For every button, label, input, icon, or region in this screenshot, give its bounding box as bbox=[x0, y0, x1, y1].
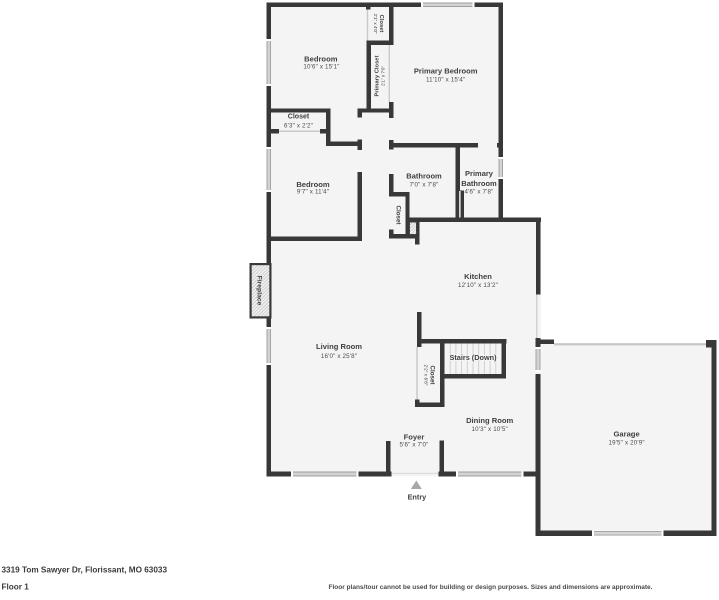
svg-text:6'3" x 2'2": 6'3" x 2'2" bbox=[284, 123, 313, 130]
svg-text:Closet2'2" x 6'8": Closet2'2" x 6'8" bbox=[423, 365, 436, 386]
svg-text:Garage: Garage bbox=[614, 429, 640, 438]
svg-text:Primary: Primary bbox=[465, 169, 494, 178]
svg-text:7'0" x 7'8": 7'0" x 7'8" bbox=[409, 181, 438, 188]
svg-text:Closet: Closet bbox=[288, 114, 310, 121]
svg-text:Bathroom: Bathroom bbox=[461, 179, 497, 188]
svg-text:Stairs (Down): Stairs (Down) bbox=[449, 353, 497, 362]
svg-text:Fireplace: Fireplace bbox=[256, 276, 263, 306]
svg-text:12'10" x 13'2": 12'10" x 13'2" bbox=[458, 282, 498, 289]
svg-text:10'3" x 10'5": 10'3" x 10'5" bbox=[472, 426, 508, 433]
svg-text:Closet: Closet bbox=[395, 206, 402, 225]
svg-text:11'10" x 15'4": 11'10" x 15'4" bbox=[426, 77, 465, 84]
svg-text:9'7" x 11'4": 9'7" x 11'4" bbox=[297, 189, 329, 196]
svg-text:3319 Tom Sawyer Dr, Florissant: 3319 Tom Sawyer Dr, Florissant, MO 63033 bbox=[2, 566, 168, 575]
svg-text:16'0" x 25'8": 16'0" x 25'8" bbox=[321, 353, 357, 360]
svg-text:Closet2'1" x 4'0": Closet2'1" x 4'0" bbox=[373, 13, 384, 33]
svg-text:10'6" x 15'1": 10'6" x 15'1" bbox=[303, 64, 339, 71]
svg-text:Living Room: Living Room bbox=[316, 342, 362, 351]
svg-text:4'6" x 7'8": 4'6" x 7'8" bbox=[464, 188, 493, 195]
svg-text:Foyer: Foyer bbox=[404, 433, 425, 442]
svg-text:Bathroom: Bathroom bbox=[406, 171, 442, 180]
svg-text:Entry: Entry bbox=[408, 493, 428, 502]
svg-text:5'6" x 7'0": 5'6" x 7'0" bbox=[399, 441, 428, 448]
svg-text:Dining Room: Dining Room bbox=[466, 416, 513, 425]
svg-text:Primary Bedroom: Primary Bedroom bbox=[414, 66, 478, 75]
svg-text:Floor plans/tour cannot be use: Floor plans/tour cannot be used for buil… bbox=[329, 584, 653, 591]
svg-text:19'5" x 20'9": 19'5" x 20'9" bbox=[608, 440, 644, 447]
svg-text:Kitchen: Kitchen bbox=[464, 272, 492, 281]
svg-text:Bedroom: Bedroom bbox=[304, 54, 338, 63]
svg-text:Floor 1: Floor 1 bbox=[2, 583, 30, 592]
